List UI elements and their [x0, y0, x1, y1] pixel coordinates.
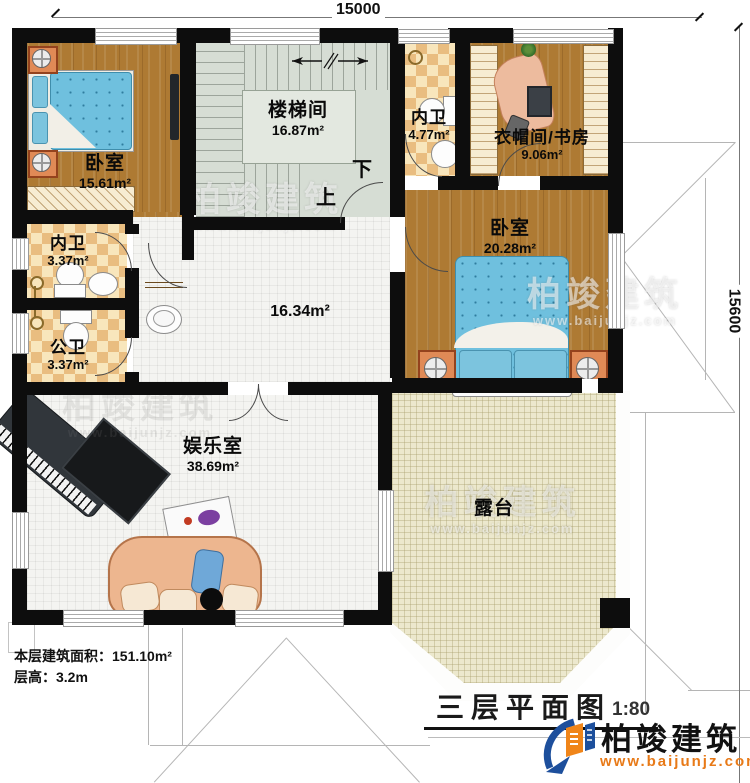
stair-treads-bottom — [244, 158, 304, 217]
sink-icon — [88, 272, 118, 296]
wall — [392, 378, 582, 393]
tv-icon — [170, 74, 179, 140]
monitor-icon — [527, 86, 552, 117]
window — [12, 512, 29, 569]
toilet-tank — [54, 284, 86, 298]
window — [608, 233, 625, 329]
wall — [318, 28, 398, 43]
window — [12, 238, 29, 270]
wall — [378, 392, 392, 490]
wall — [438, 176, 498, 190]
dimension-top: 15000 — [332, 1, 385, 19]
roof-line — [645, 412, 646, 712]
window — [63, 610, 144, 627]
terrace-pillar — [600, 598, 630, 628]
window — [398, 29, 450, 44]
roof-line — [286, 638, 420, 783]
roof-line — [705, 178, 706, 380]
wall — [27, 210, 133, 224]
lamp-icon — [32, 49, 51, 68]
hall-floor — [133, 217, 390, 382]
wall — [142, 610, 235, 625]
lamp-icon — [424, 357, 447, 380]
roof-line — [688, 690, 750, 691]
wall — [180, 43, 196, 215]
lamp-icon — [576, 357, 599, 380]
stair-treads-left — [196, 43, 244, 217]
room-label-bedroom1: 卧室 15.61m² — [55, 153, 155, 191]
plant-icon — [521, 42, 536, 57]
room-label-entertainment: 娱乐室 38.69m² — [158, 436, 268, 474]
room-label-terrace: 露台 — [452, 498, 536, 520]
wall — [27, 298, 125, 310]
window — [12, 313, 29, 354]
wall — [288, 382, 392, 395]
wall — [390, 272, 405, 378]
sink-basin — [153, 310, 175, 327]
window — [235, 610, 344, 627]
stair-up-label: 上 — [316, 181, 336, 210]
wall — [378, 570, 392, 625]
pillow — [32, 112, 48, 144]
wall — [448, 28, 513, 43]
window — [513, 29, 614, 44]
lamp-icon — [32, 153, 51, 172]
roof-line — [622, 412, 735, 413]
person-head — [200, 588, 223, 611]
roof-line — [629, 628, 692, 691]
roof-line — [622, 142, 736, 256]
wall — [12, 268, 27, 313]
towel-ring-icon — [30, 316, 44, 330]
room-label-hall-area: 16.34m² — [250, 303, 350, 321]
roof-line — [622, 142, 735, 143]
room-label-study: 衣帽间/书房 9.06m² — [466, 128, 618, 162]
window — [378, 490, 394, 572]
floor-height-line: 层高：3.2m — [14, 667, 172, 688]
brand-logo-icon — [540, 712, 600, 778]
window — [230, 28, 320, 45]
towel-ring-icon — [30, 276, 44, 290]
terrace-floor — [392, 393, 624, 689]
wall — [12, 610, 63, 625]
wall — [125, 268, 139, 338]
roof-line — [182, 628, 183, 745]
floor-plan: 15000 15600 — [0, 0, 750, 783]
floor-area-line: 本层建筑面积：151.10m² — [14, 646, 172, 667]
fruit-icon — [184, 517, 192, 525]
stair-down-label: 下 — [352, 153, 372, 182]
wall — [598, 378, 623, 393]
dimension-line-right — [739, 26, 740, 783]
wall — [390, 176, 405, 190]
wall — [12, 382, 228, 395]
room-label-bath-top: 内卫 4.77m² — [398, 108, 460, 142]
room-label-bath-public: 公卫 3.37m² — [30, 338, 106, 372]
wall — [192, 217, 345, 230]
wall — [175, 28, 230, 43]
room-label-bath-mid: 内卫 3.37m² — [30, 234, 106, 268]
roof-line — [154, 637, 287, 782]
wall — [12, 352, 27, 512]
terrace-door-opening — [582, 379, 598, 392]
roof-line — [621, 257, 735, 413]
wall — [12, 28, 27, 238]
room-label-stairwell: 楼梯间 16.87m² — [242, 100, 354, 138]
brand-url: www.baijunjz.com — [600, 753, 750, 770]
wall — [540, 176, 623, 190]
dimension-tick — [695, 12, 704, 21]
stair-direction-arrows — [288, 50, 372, 72]
room-label-bedroom2: 卧室 20.28m² — [455, 218, 565, 256]
window — [95, 28, 177, 45]
pillow — [32, 76, 48, 108]
wall — [125, 224, 139, 234]
dimension-right: 15600 — [724, 285, 742, 338]
roof-line — [150, 745, 430, 746]
towel-ring-icon — [408, 50, 423, 65]
floor-info: 本层建筑面积：151.10m² 层高：3.2m — [14, 646, 172, 688]
